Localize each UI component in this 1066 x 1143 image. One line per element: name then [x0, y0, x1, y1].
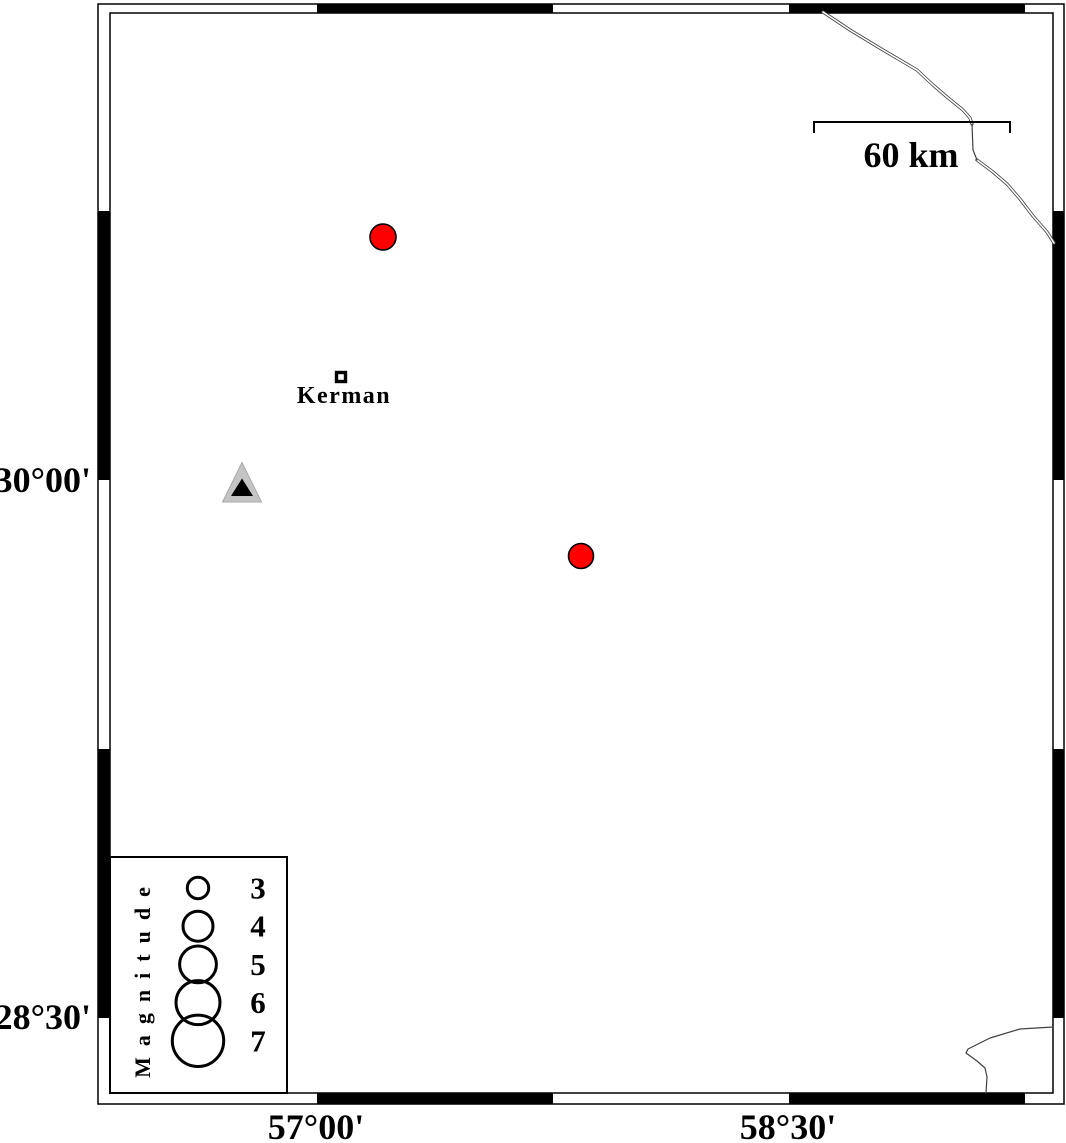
- legend-title: Magnitude: [130, 876, 155, 1078]
- border-line: [972, 124, 977, 160]
- city-marker-square: [337, 373, 346, 382]
- legend-entry-label: 3: [250, 871, 266, 906]
- map-canvas: 34567 30°00' 28°30' 57°00' 58°30' 60 km …: [0, 0, 1066, 1143]
- lon-label-58-30: 58°30': [740, 1107, 836, 1143]
- frame-tick-black: [317, 4, 553, 13]
- frame-tick-black: [1053, 211, 1064, 480]
- border-line-core: [977, 160, 1054, 243]
- frame-tick-black: [98, 749, 110, 1018]
- legend-entry-label: 7: [250, 1023, 266, 1058]
- lon-label-57-00: 57°00': [268, 1107, 364, 1143]
- map-markers: [223, 224, 594, 569]
- scale-bar-bracket: [814, 122, 1010, 133]
- lat-label-28-30: 28°30': [0, 997, 91, 1037]
- scale-bar: [814, 122, 1010, 133]
- frame-tick-black: [789, 1093, 1025, 1104]
- legend-entry-label: 5: [250, 947, 266, 982]
- frame-tick-black: [1053, 749, 1064, 1018]
- earthquake-marker: [370, 224, 396, 250]
- map-figure: 34567 30°00' 28°30' 57°00' 58°30' 60 km …: [0, 0, 1066, 1143]
- frame-tick-black: [98, 211, 110, 480]
- border-line-casing: [977, 160, 1054, 243]
- legend-entry-label: 6: [250, 985, 266, 1020]
- lat-label-30-00: 30°00': [0, 460, 91, 500]
- scale-bar-label: 60 km: [863, 135, 958, 175]
- border-line-casing: [823, 12, 972, 124]
- frame-tick-black: [317, 1093, 553, 1104]
- legend-entry-label: 4: [250, 909, 266, 944]
- city-label-kerman: Kerman: [297, 383, 391, 409]
- earthquake-marker: [569, 544, 594, 569]
- border-line: [966, 1027, 1053, 1093]
